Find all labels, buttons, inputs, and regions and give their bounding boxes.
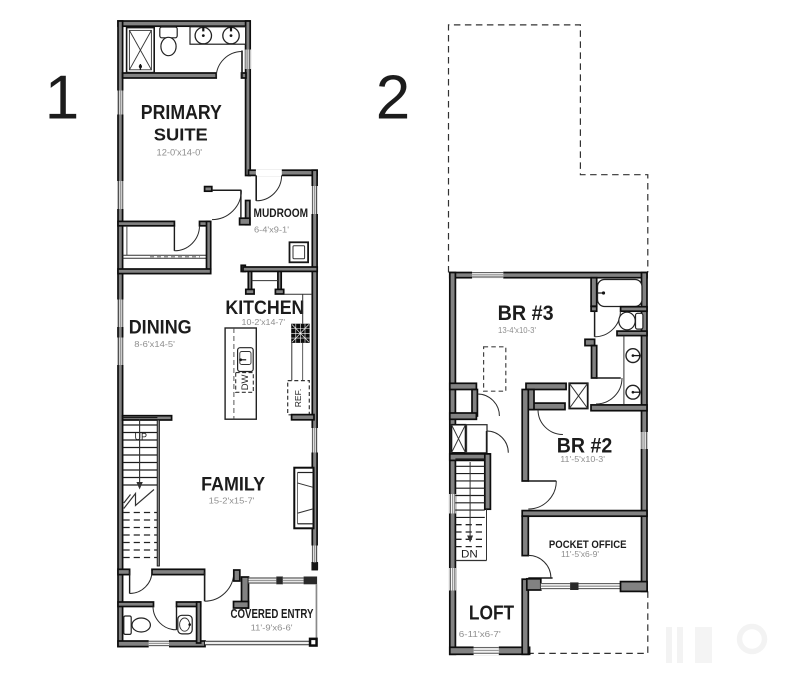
svg-text:6-11'x6-7': 6-11'x6-7' <box>459 629 501 639</box>
svg-text:11'-5'x6-9': 11'-5'x6-9' <box>561 549 599 559</box>
svg-text:10-2'x14-7': 10-2'x14-7' <box>242 317 286 327</box>
svg-text:15-2'x15-7': 15-2'x15-7' <box>209 496 255 506</box>
svg-text:PRIMARY: PRIMARY <box>141 101 222 124</box>
svg-text:2: 2 <box>376 64 410 133</box>
svg-text:13-4'x10-3': 13-4'x10-3' <box>498 325 536 335</box>
svg-text:SUITE: SUITE <box>154 125 208 145</box>
svg-text:DN: DN <box>461 549 478 561</box>
svg-text:11'-5'x10-3': 11'-5'x10-3' <box>560 454 605 464</box>
svg-text:11'-9'x6-6': 11'-9'x6-6' <box>251 623 293 633</box>
svg-text:LOFT: LOFT <box>469 602 515 625</box>
svg-text:UP: UP <box>135 431 148 443</box>
svg-text:6-4'x9-1': 6-4'x9-1' <box>254 225 289 235</box>
svg-text:DINING: DINING <box>129 317 192 339</box>
svg-text:COVERED ENTRY: COVERED ENTRY <box>231 607 315 621</box>
svg-text:8-6'x14-5': 8-6'x14-5' <box>134 339 175 349</box>
svg-text:12-0'x14-0': 12-0'x14-0' <box>157 147 203 157</box>
svg-text:KITCHEN: KITCHEN <box>225 297 304 319</box>
svg-text:REF.: REF. <box>293 389 303 407</box>
svg-text:MUDROOM: MUDROOM <box>254 208 309 220</box>
svg-text:BR #3: BR #3 <box>498 302 554 325</box>
svg-text:FAMILY: FAMILY <box>201 474 265 496</box>
svg-text:1: 1 <box>45 64 79 133</box>
svg-text:DW: DW <box>240 374 251 390</box>
